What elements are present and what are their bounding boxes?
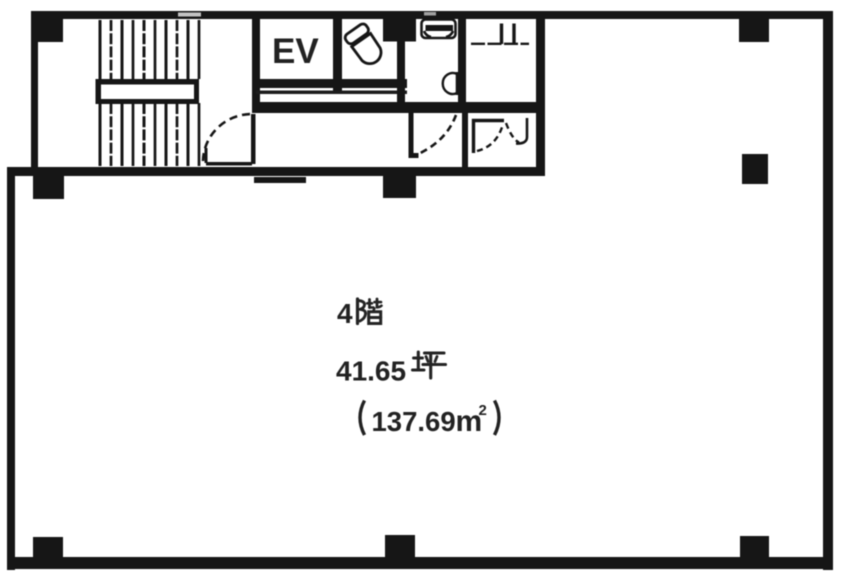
svg-text:41.65: 41.65	[336, 356, 406, 387]
svg-text:4: 4	[337, 298, 353, 329]
svg-text:EV: EV	[272, 32, 319, 71]
svg-text:137.69: 137.69	[372, 406, 456, 437]
svg-text:2: 2	[479, 402, 487, 419]
